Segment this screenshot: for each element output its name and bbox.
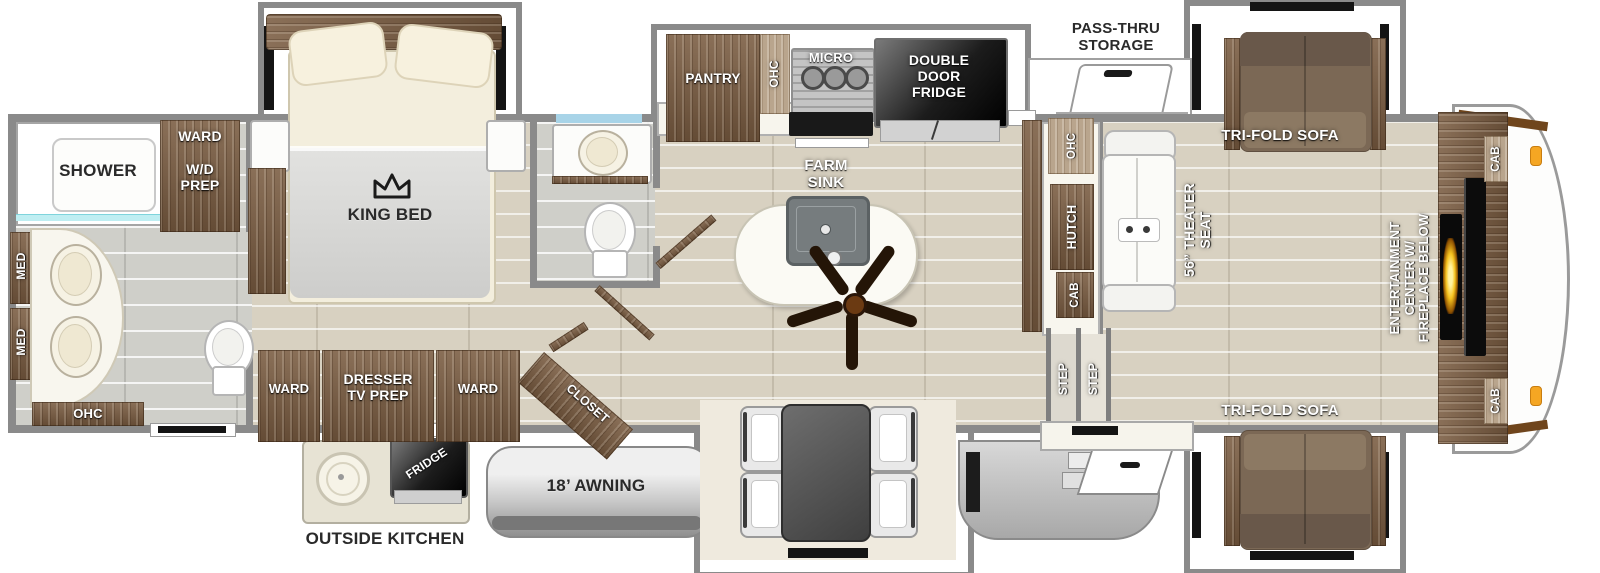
ward-right-label: WARD xyxy=(436,380,520,398)
fireplace-glow xyxy=(1443,238,1458,314)
fan-blade-2 xyxy=(846,312,858,370)
step-left-label: STEP xyxy=(1057,343,1071,415)
burner-1 xyxy=(801,66,825,90)
awning-roller xyxy=(492,516,702,530)
farm-sink-drain xyxy=(820,224,831,235)
pantry-cabinet xyxy=(666,34,760,142)
theater-console xyxy=(1118,218,1160,242)
cab-front-top-label: CAB xyxy=(1489,139,1503,179)
entertainment-label: ENTERTAINMENT CENTER W/ FIREPLACE BELOW xyxy=(1383,178,1437,378)
shower-label: SHOWER xyxy=(38,158,158,184)
entry-door-handle xyxy=(1120,462,1140,468)
entry-platform-window xyxy=(966,452,980,512)
pillow-right xyxy=(393,22,495,89)
burner-2 xyxy=(823,66,847,90)
midbath-toilet-base xyxy=(592,250,628,278)
double-door-fridge-label: DOUBLE DOOR FRIDGE xyxy=(876,46,1002,108)
theater-seat-label: 56” THEATER SEAT xyxy=(1179,160,1217,300)
sofa-bottom-armrest-right xyxy=(1370,436,1386,546)
window-bath xyxy=(158,426,226,433)
hutch-label: HUTCH xyxy=(1064,190,1080,264)
dinette-window xyxy=(788,548,868,558)
rear-toilet-base xyxy=(212,366,246,396)
theater-seat-footrest xyxy=(1102,284,1176,312)
awning-label: 18’ AWNING xyxy=(520,474,672,498)
nightstand-left xyxy=(250,120,290,172)
farm-sink-label: FARM SINK xyxy=(786,154,866,196)
crown-icon xyxy=(370,172,414,202)
sofa-top-rear-window xyxy=(1250,2,1354,11)
vanity-sink-upper-bowl xyxy=(58,252,92,296)
sofa-bottom-seam xyxy=(1304,434,1306,544)
fridge-base xyxy=(880,120,1000,142)
dinette-chair-4 xyxy=(868,472,918,538)
ohc-bath-label: OHC xyxy=(58,404,118,424)
midbath-mirror xyxy=(556,114,642,123)
ohc-hutch-label: OHC xyxy=(1065,120,1079,172)
cab-front-bottom-label: CAB xyxy=(1489,381,1503,421)
burner-3 xyxy=(845,66,869,90)
sofa-bottom-armrest-left xyxy=(1224,436,1240,546)
vanity-sink-lower-bowl xyxy=(58,324,92,368)
floorplan-canvas: SHOWER MED MED OHC WARD W/D PREP KING BE… xyxy=(0,0,1600,573)
outside-fridge-base xyxy=(394,490,462,504)
sofa-top-armrest-right xyxy=(1370,38,1386,150)
dinette-chair-3 xyxy=(868,406,918,472)
tv xyxy=(1464,178,1486,356)
pillow-left xyxy=(287,20,389,87)
midbath-toilet-seat xyxy=(592,210,626,250)
ward-rear-label: WARD xyxy=(162,128,238,146)
wall-midbath-left xyxy=(530,118,537,288)
entry-threshold xyxy=(1072,426,1118,435)
med-lower-label: MED xyxy=(14,314,30,370)
sofa-bottom-window-left xyxy=(1192,452,1201,538)
dresser-label: DRESSER TV PREP xyxy=(322,368,434,408)
midbath-vanity-base xyxy=(552,176,648,184)
ohc-kitchen-label: OHC xyxy=(768,46,782,102)
cupholder-1 xyxy=(1126,226,1133,233)
sofa-top-label: TRI-FOLD SOFA xyxy=(1198,126,1362,146)
bedside-wardrobe xyxy=(248,168,286,294)
marker-light-top xyxy=(1530,146,1542,166)
sofa-top-window-left xyxy=(1192,24,1201,110)
outside-kitchen-label: OUTSIDE KITCHEN xyxy=(278,528,492,550)
range-hood xyxy=(789,112,873,136)
dinette-table xyxy=(781,404,871,542)
cab-hutch-label: CAB xyxy=(1068,273,1082,317)
hutch-side-panel xyxy=(1022,120,1042,332)
med-upper-label: MED xyxy=(14,238,30,294)
sofa-bottom-rear-window xyxy=(1250,551,1354,560)
king-bed-label: KING BED xyxy=(324,204,456,226)
step-right-label: STEP xyxy=(1087,343,1101,415)
wall-midbath-bottom xyxy=(530,281,660,288)
outside-kitchen-drain xyxy=(338,474,344,480)
ward-left-label: WARD xyxy=(258,380,320,398)
marker-light-bottom xyxy=(1530,386,1542,406)
rear-toilet-seat xyxy=(212,328,244,366)
micro-label: MICRO xyxy=(795,50,867,66)
cupholder-2 xyxy=(1143,226,1150,233)
nightstand-right xyxy=(486,120,526,172)
wd-prep-label: W/D PREP xyxy=(162,160,238,196)
shower-glass xyxy=(16,214,162,221)
midbath-sink-bowl xyxy=(586,137,618,167)
sofa-bottom-label: TRI-FOLD SOFA xyxy=(1198,401,1362,421)
range-sill xyxy=(795,138,869,148)
pass-thru-label: PASS-THRU STORAGE xyxy=(1046,18,1186,58)
ceiling-fan-hub-icon xyxy=(843,293,867,317)
step-rail-3 xyxy=(1106,328,1111,426)
pass-thru-handle xyxy=(1103,70,1132,77)
pantry-label: PANTRY xyxy=(666,70,760,88)
duvet-fold xyxy=(290,146,490,151)
